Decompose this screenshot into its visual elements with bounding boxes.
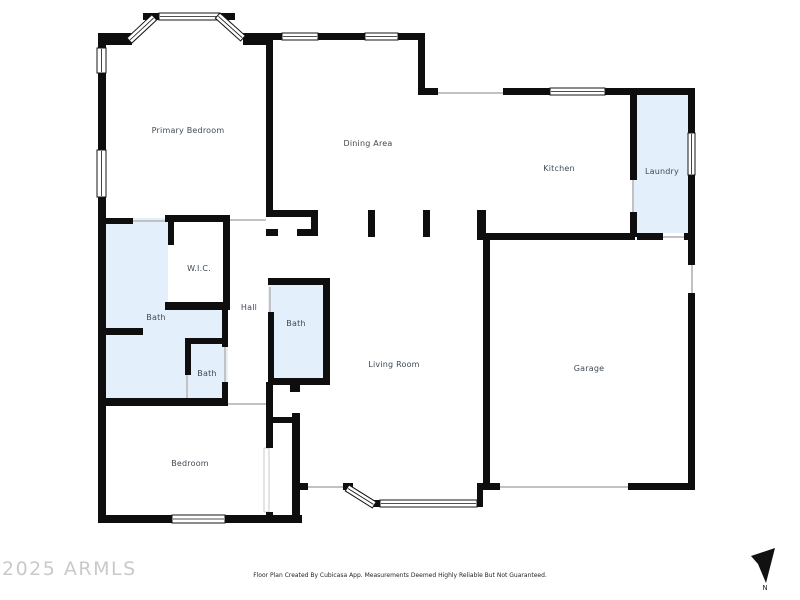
room-label-kitchen: Kitchen [543,164,574,173]
room-label-dining-area: Dining Area [344,139,393,148]
window-living-south [380,500,477,507]
room-label-bedroom: Bedroom [171,459,209,468]
closet-door [264,448,269,512]
north-compass: N [744,544,786,592]
window-dining-2 [365,33,398,40]
window-laundry [688,133,695,175]
window-left-upper [97,48,106,73]
room-label-laundry: Laundry [645,167,679,176]
wic-floor [168,215,230,310]
window-dining-1 [282,33,318,40]
room-label-bath-left: Bath [146,313,165,322]
floor-plan: Primary Bedroom Dining Area Kitchen Laun… [0,0,800,600]
wet-room-fills [104,95,688,404]
room-label-wic: W.I.C. [187,264,211,273]
room-label-living-room: Living Room [368,360,419,369]
room-label-hall: Hall [241,303,257,312]
room-label-bath-hall: Bath [286,319,305,328]
laundry-floor-fill [633,95,688,233]
room-label-garage: Garage [574,364,605,373]
floor-plan-page: Primary Bedroom Dining Area Kitchen Laun… [0,0,800,600]
bath-floor-fill-hall [268,278,330,385]
disclaimer-text: Floor Plan Created By Cubicasa App. Meas… [0,572,800,579]
window-left-mid [97,150,106,197]
bay-window-left [127,15,157,43]
window-living-angled [345,485,376,508]
bay-window-top [159,13,219,20]
room-label-primary-bedroom: Primary Bedroom [152,126,225,135]
window-kitchen [550,88,605,95]
north-label: N [762,584,767,592]
room-label-bath-small: Bath [197,369,216,378]
window-bedroom [172,515,225,523]
north-arrow-icon [751,548,775,583]
